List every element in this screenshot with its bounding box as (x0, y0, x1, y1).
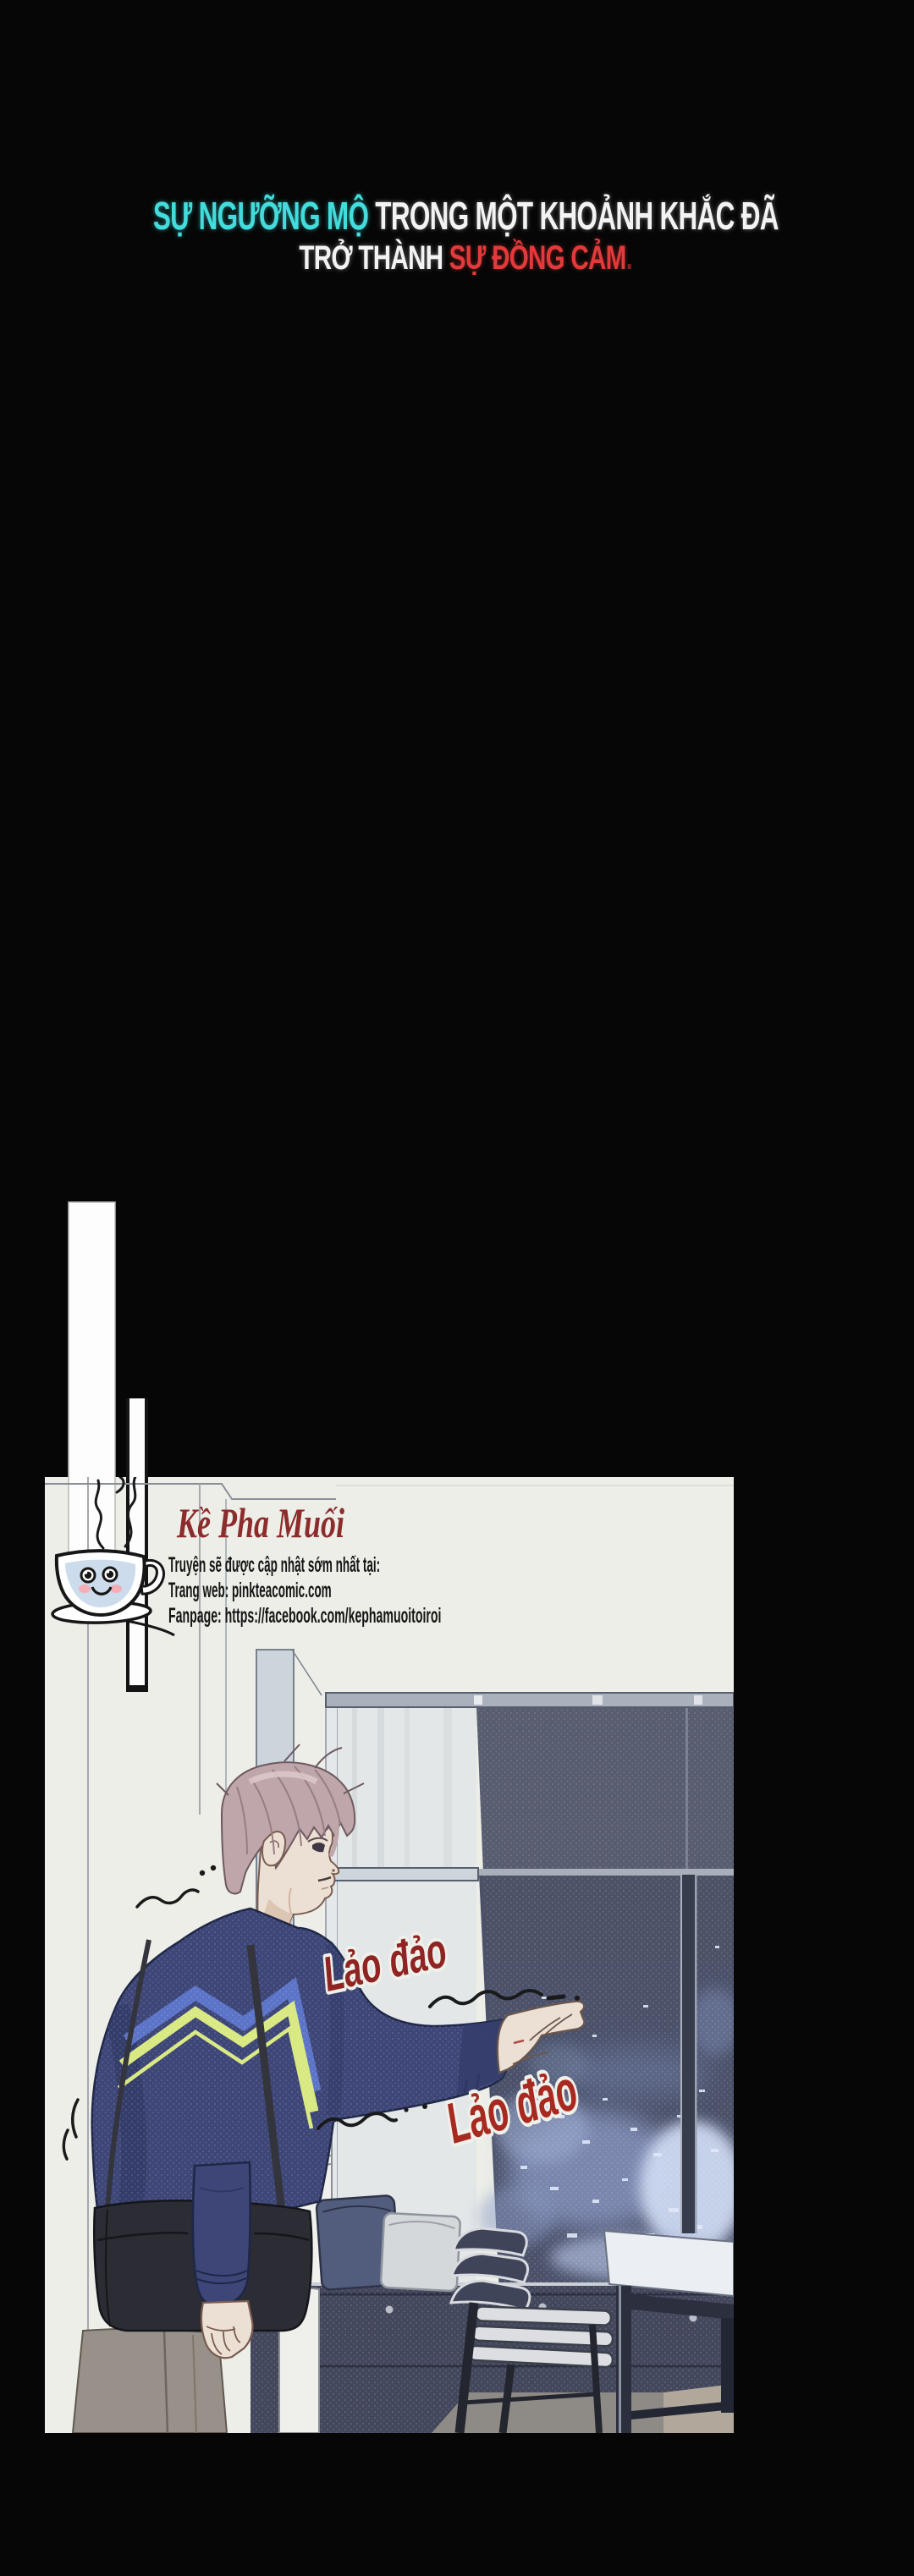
svg-text:Truyện sẽ được cập nhật sớm nh: Truyện sẽ được cập nhật sớm nhất tại: (168, 1554, 380, 1577)
svg-text:Trang web: pinkteacomic.com: Trang web: pinkteacomic.com (168, 1579, 332, 1602)
svg-text:Fanpage: https://facebook.com/: Fanpage: https://facebook.com/kephamuoit… (168, 1605, 441, 1628)
svg-text:Kề Pha Muối: Kề Pha Muối (176, 1500, 344, 1546)
